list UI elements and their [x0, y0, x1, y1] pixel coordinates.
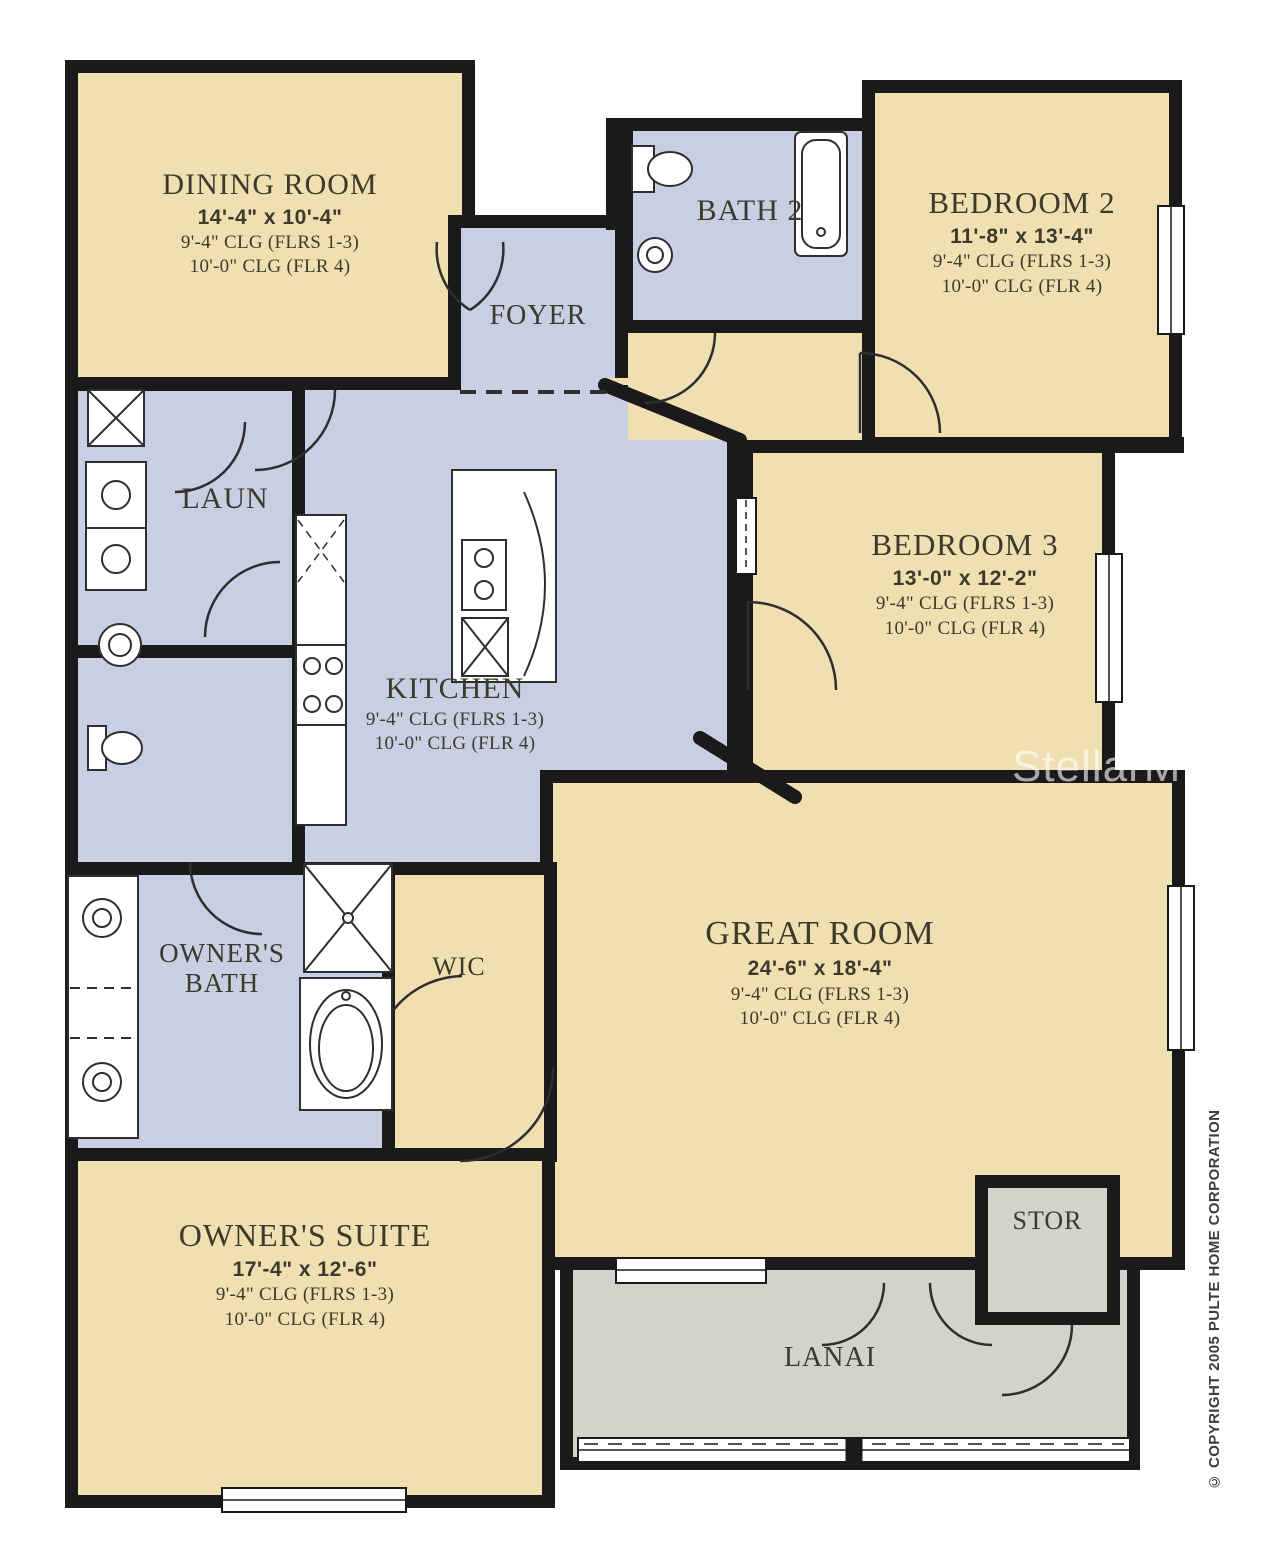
room-ceiling-b: 10'-0" CLG (FLR 4) — [872, 276, 1172, 297]
room-name: BEDROOM 2 — [872, 186, 1172, 221]
room-dims: 13'-0" x 12'-2" — [800, 567, 1130, 591]
room-name: OWNER'S BATH — [138, 938, 306, 998]
room-owners-bath — [65, 862, 395, 1162]
room-name: STOR — [985, 1206, 1110, 1235]
room-name: LANAI — [740, 1342, 920, 1373]
wic-label: WIC — [404, 952, 514, 981]
floor-plan: DINING ROOM 14'-4" x 10'-4" 9'-4" CLG (F… — [0, 0, 1280, 1550]
room-name: LAUN — [150, 482, 300, 516]
owners-suite-label: OWNER'S SUITE 17'-4" x 12'-6" 9'-4" CLG … — [120, 1218, 490, 1330]
room-name: WIC — [404, 952, 514, 981]
room-name: KITCHEN — [330, 672, 580, 706]
room-name: OWNER'S SUITE — [120, 1218, 490, 1254]
room-wic — [382, 862, 557, 1162]
great-room-label: GREAT ROOM 24'-6" x 18'-4" 9'-4" CLG (FL… — [640, 915, 1000, 1029]
foyer-label: FOYER — [458, 300, 618, 331]
room-ceiling-b: 10'-0" CLG (FLR 4) — [330, 733, 580, 754]
storage-label: STOR — [985, 1206, 1110, 1235]
room-dims: 17'-4" x 12'-6" — [120, 1258, 490, 1282]
dining-room-label: DINING ROOM 14'-4" x 10'-4" 9'-4" CLG (F… — [90, 168, 450, 278]
room-name: GREAT ROOM — [640, 915, 1000, 953]
room-name: FOYER — [458, 300, 618, 331]
room-ceiling-a: 9'-4" CLG (FLRS 1-3) — [90, 232, 450, 253]
room-name: BATH 2 — [660, 194, 840, 228]
owners-bath-label: OWNER'S BATH — [138, 938, 306, 998]
room-ceiling-b: 10'-0" CLG (FLR 4) — [120, 1309, 490, 1330]
room-dims: 11'-8" x 13'-4" — [872, 225, 1172, 249]
bath2-label: BATH 2 — [660, 194, 840, 228]
room-ceiling-a: 9'-4" CLG (FLRS 1-3) — [872, 251, 1172, 272]
room-name: DINING ROOM — [90, 168, 450, 202]
room-ceiling-b: 10'-0" CLG (FLR 4) — [90, 256, 450, 277]
room-ceiling-a: 9'-4" CLG (FLRS 1-3) — [330, 709, 580, 730]
room-name: BEDROOM 3 — [800, 528, 1130, 563]
room-storage — [975, 1175, 1120, 1325]
room-ceiling-b: 10'-0" CLG (FLR 4) — [640, 1008, 1000, 1029]
kitchen-label: KITCHEN 9'-4" CLG (FLRS 1-3) 10'-0" CLG … — [330, 672, 580, 754]
room-ceiling-a: 9'-4" CLG (FLRS 1-3) — [640, 984, 1000, 1005]
room-dims: 24'-6" x 18'-4" — [640, 957, 1000, 981]
bedroom3-label: BEDROOM 3 13'-0" x 12'-2" 9'-4" CLG (FLR… — [800, 528, 1130, 639]
room-ceiling-a: 9'-4" CLG (FLRS 1-3) — [800, 593, 1130, 614]
room-dims: 14'-4" x 10'-4" — [90, 206, 450, 230]
copyright-text: © COPYRIGHT 2005 PULTE HOME CORPORATION — [1206, 930, 1240, 1490]
room-ceiling-a: 9'-4" CLG (FLRS 1-3) — [120, 1284, 490, 1305]
laundry-label: LAUN — [150, 482, 300, 516]
room-powder-hall — [65, 645, 305, 875]
lanai-label: LANAI — [740, 1342, 920, 1373]
bedroom2-label: BEDROOM 2 11'-8" x 13'-4" 9'-4" CLG (FLR… — [872, 186, 1172, 297]
room-laundry — [65, 378, 305, 658]
stellar-mls-watermark: StellarMLS — [1012, 742, 1237, 792]
room-ceiling-b: 10'-0" CLG (FLR 4) — [800, 618, 1130, 639]
